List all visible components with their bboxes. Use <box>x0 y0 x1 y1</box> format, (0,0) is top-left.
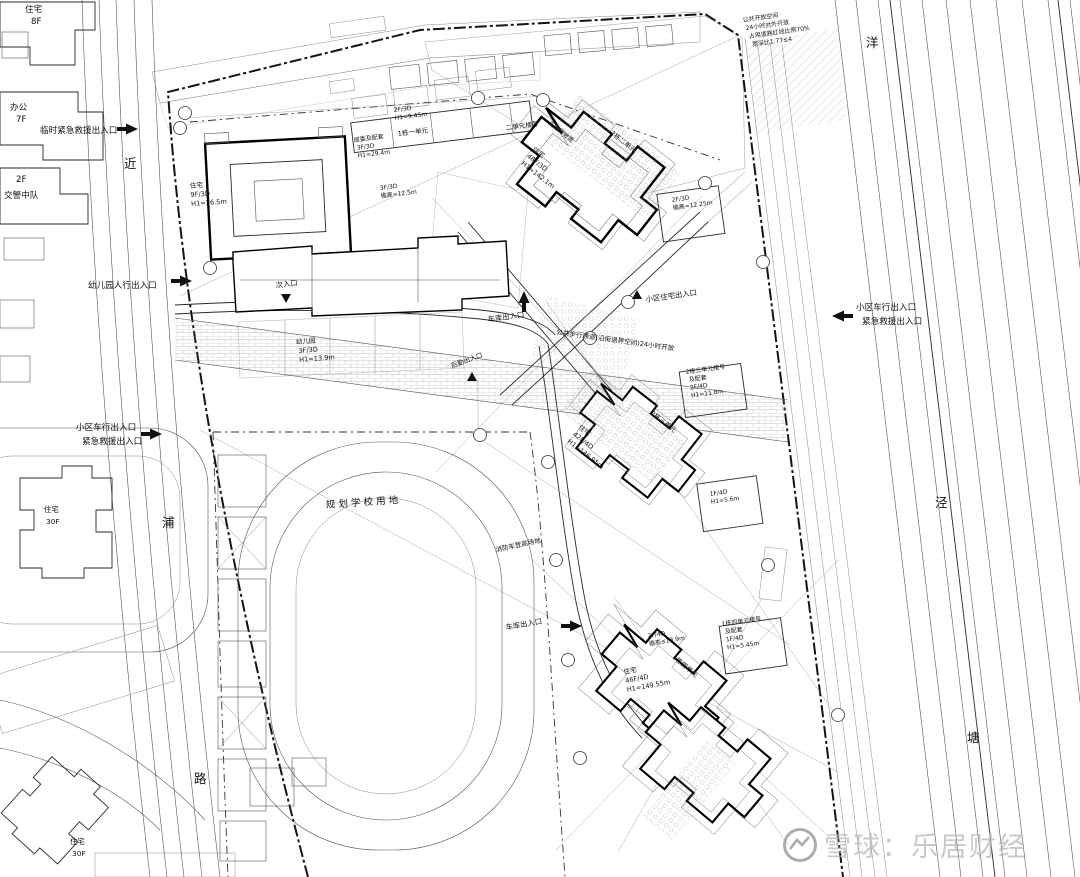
school-label: 规划学校用地 <box>325 494 401 511</box>
res30fa-name: 住宅 <box>44 505 59 514</box>
police-floors: 2F <box>16 175 26 185</box>
tower3-annex-label: 1栋四单元楼号 及配套 1F/4D H1≈5.45m <box>721 615 765 652</box>
garage-west-label: 车库出入口 <box>487 310 525 324</box>
res30fb-floors: 30F <box>72 849 86 858</box>
kg-ped-label: 幼儿园人行出入口 <box>88 279 157 291</box>
garage-south-arrow-icon <box>561 621 582 632</box>
east-vehicle-label-2: 紧急救援出入口 <box>862 315 922 327</box>
east-sidewalk-strip <box>745 38 887 877</box>
left-road-char-3: 路 <box>194 771 207 786</box>
site-plan-svg: 住宅 8F 办公 7F 2F 交警中队 住宅 30F 住宅 30F 近 浦 路 … <box>0 0 1080 877</box>
temp-rescue-arrow-icon <box>117 124 138 135</box>
west-vehicle-label-2: 紧急救援出入口 <box>82 435 142 447</box>
res30fa-floors: 30F <box>46 517 60 526</box>
resident-entry-triangle-icon <box>632 290 642 299</box>
svg-text:住宅: 住宅 <box>190 180 204 190</box>
roof-detail-row-a <box>389 52 535 89</box>
east-vehicle-arrow-icon <box>832 311 853 322</box>
garage-west-arrow-icon <box>519 291 530 312</box>
building-b1 <box>205 126 351 259</box>
xueqiu-logo-mark-icon <box>790 837 809 849</box>
office-name: 办公 <box>10 101 28 113</box>
tower2-side-label: 1F/4D H1≈5.6m <box>709 487 740 506</box>
tower2-annex-label: 2栋三单元楼号 及配套 2F/4D H1≈11.8m <box>685 363 729 400</box>
xueqiu-logo-icon <box>785 830 816 861</box>
east-vehicle-label-1: 小区车行出入口 <box>856 301 916 313</box>
kg-ped-arrow-icon <box>171 276 192 287</box>
labels: 住宅 8F 办公 7F 2F 交警中队 住宅 30F 住宅 30F 近 浦 路 … <box>4 3 980 858</box>
site-plan-drawing: 住宅 8F 办公 7F 2F 交警中队 住宅 30F 住宅 30F 近 浦 路 … <box>0 0 1080 877</box>
b1-unit-label: 1栋一单元 <box>397 125 429 138</box>
tower-3-cluster <box>558 582 806 857</box>
fire-zone-label: 消防车登高场地 <box>495 535 542 553</box>
res30f-a-block <box>0 428 208 652</box>
watermark-text: 雪球：乐居财经 <box>824 832 1027 863</box>
svg-text:3F/3D: 3F/3D <box>298 345 318 354</box>
resident-entry-label: 小区住宅出入口 <box>645 288 697 304</box>
right-road-char-2: 泾 <box>935 495 948 510</box>
tower1-podium-label: 2F/3D 檐高≈12.25m <box>671 191 713 211</box>
right-road <box>835 0 1080 877</box>
res8f-floors: 8F <box>31 17 41 27</box>
office-floors: 7F <box>16 115 26 125</box>
garage-south-label: 车库出入口 <box>505 617 543 632</box>
left-road-char-1: 近 <box>124 156 137 171</box>
right-road-char-3: 塘 <box>967 730 980 745</box>
res8f-name: 住宅 <box>25 3 43 15</box>
annex-label: 居委及配套 3F/3D H1≈29.4m <box>353 132 390 160</box>
police-name: 交警中队 <box>4 189 39 201</box>
podium-label: 3F/3D 檐高≈12.5m <box>379 181 417 200</box>
svg-text:幼儿园: 幼儿园 <box>296 336 317 346</box>
planter-strips <box>218 455 266 861</box>
track-mid <box>270 472 502 820</box>
track-inner <box>296 498 476 794</box>
west-vehicle-label-1: 小区车行出入口 <box>76 421 136 433</box>
svg-text:9F/3D: 9F/3D <box>190 190 210 199</box>
temp-rescue-label: 临时紧急救援出入口 <box>40 124 117 136</box>
watermark: 雪球：乐居财经 <box>785 830 1028 864</box>
left-road-char-2: 浦 <box>162 515 175 530</box>
res30fb-name: 住宅 <box>70 837 85 846</box>
right-road-char-1: 洋 <box>866 35 879 50</box>
